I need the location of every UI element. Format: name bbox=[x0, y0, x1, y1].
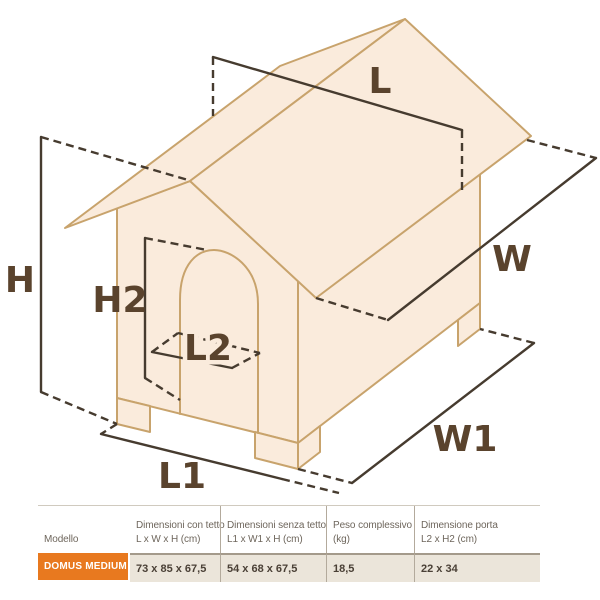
label-door-height: H2 bbox=[92, 280, 147, 321]
doghouse-drawing bbox=[65, 19, 531, 469]
label-total-height: H bbox=[5, 260, 35, 301]
value-weight: 18,5 bbox=[326, 553, 414, 582]
label-roof-depth: W bbox=[492, 239, 532, 280]
label-base-length: L1 bbox=[158, 456, 206, 497]
header-modello: Modello bbox=[38, 506, 130, 553]
spec-table-header: Modello Dimensioni con tetto L x W x H (… bbox=[38, 506, 540, 553]
spec-table: Modello Dimensioni con tetto L x W x H (… bbox=[38, 505, 540, 582]
spec-table-row: DOMUS MEDIUM 73 x 85 x 67,5 54 x 68 x 67… bbox=[38, 553, 540, 582]
model-badge: DOMUS MEDIUM bbox=[38, 553, 128, 580]
doghouse-dimension-diagram: L W H H2 L2 L1 W1 bbox=[0, 0, 600, 505]
header-peso: Peso complessivo (kg) bbox=[326, 506, 414, 553]
header-dim-con-tetto: Dimensioni con tetto L x W x H (cm) bbox=[130, 506, 220, 553]
header-dim-senza-tetto: Dimensioni senza tetto L1 x W1 x H (cm) bbox=[220, 506, 326, 553]
value-door-size: 22 x 34 bbox=[414, 553, 540, 582]
header-porta: Dimensione porta L2 x H2 (cm) bbox=[414, 506, 540, 553]
value-dim-without-roof: 54 x 68 x 67,5 bbox=[220, 553, 326, 582]
label-roof-length: L bbox=[369, 61, 392, 102]
label-base-depth: W1 bbox=[433, 419, 498, 460]
product-dimension-sheet: L W H H2 L2 L1 W1 Modello Dimensioni con… bbox=[0, 0, 600, 600]
label-door-width: L2 bbox=[184, 328, 232, 369]
value-dim-with-roof: 73 x 85 x 67,5 bbox=[130, 553, 220, 582]
